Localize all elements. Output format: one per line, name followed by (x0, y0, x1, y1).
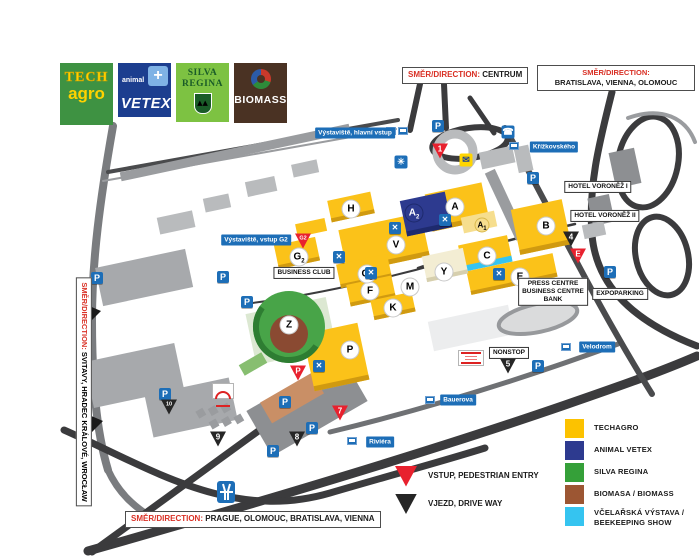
restaurant-icon: ✕ (333, 251, 345, 263)
poi-hotel-voronez-1: HOTEL VORONĚŽ I (564, 181, 631, 193)
legend-row: BIOMASA / BIOMASS (565, 485, 684, 504)
legend-label: SILVA REGINA (594, 463, 648, 477)
transit-stop-icon (561, 343, 571, 351)
restaurant-icon: ✕ (365, 267, 377, 279)
street-label: Riviéra (366, 436, 394, 447)
direction-prefix: SMĚR/DIRECTION: (540, 68, 692, 78)
parking-icon: P (279, 396, 291, 408)
poi-hotel-voronez-2: HOTEL VORONĚŽ II (570, 210, 639, 222)
transit-stop-icon (347, 437, 357, 445)
parking-icon: P (267, 445, 279, 457)
entry-marker-g2: G2 (295, 234, 311, 249)
hall-label-c: C (479, 248, 496, 265)
transit-stop-icon (398, 127, 408, 135)
hall-label-p: P (342, 342, 359, 359)
hall-label-g2: G2 (291, 249, 308, 266)
first-aid-icon: ✳ (395, 156, 408, 169)
legend-swatch (565, 441, 584, 460)
transit-stop-icon (425, 396, 435, 404)
silva-logo-line1: SILVA (176, 68, 229, 79)
entry-marker-7: 7 (332, 406, 348, 421)
hall-label-y: Y (436, 264, 453, 281)
restaurant-icon: ✕ (313, 360, 325, 372)
legend-row: ANIMAL VETEX (565, 441, 684, 460)
street-label: Výstaviště, vstup G2 (221, 234, 291, 245)
biomass-logo: BIOMASS (234, 63, 287, 123)
techagro-logo: TECH agro (60, 63, 113, 125)
legend-row: SILVA REGINA (565, 463, 684, 482)
legend-label: BIOMASA / BIOMASS (594, 485, 674, 499)
pedestrian-entry-label: VSTUP, PEDESTRIAN ENTRY (428, 472, 539, 480)
direction-prefix: SMĚR/DIRECTION: (131, 514, 203, 523)
animal-vetex-logo: + animal VETEX (118, 63, 171, 117)
motorway-icon (217, 481, 235, 503)
legend-label: VČELAŘSKÁ VÝSTAVA /BEEKEEPING SHOW (594, 507, 684, 528)
gate-marker-4: 4 (563, 232, 579, 247)
hall-label-a2: A2 (406, 205, 423, 222)
street-label: Výstaviště, hlavní vstup (315, 127, 395, 138)
vetex-logo-small-text: animal (122, 77, 144, 84)
direction-destinations: CENTRUM (482, 70, 522, 79)
hall-label-a: A (447, 199, 464, 216)
parking-icon: P (604, 266, 616, 278)
parking-icon: P (432, 120, 444, 132)
vetex-logo-big-text: VETEX (121, 97, 171, 112)
legend-swatch (565, 485, 584, 504)
direction-sign-prague: SMĚR/DIRECTION: PRAGUE, OLOMOUC, BRATISL… (125, 511, 381, 528)
fairground-map: AA1A2BCEFG1G2HKMVYZPPPPPPPPPPPP✕✕✕✕✕✕1G2… (0, 0, 699, 558)
entry-marker-1: 1 (432, 144, 448, 159)
legend-row: VČELAŘSKÁ VÝSTAVA /BEEKEEPING SHOW (565, 507, 684, 528)
poi-business-club: BUSINESS CLUB (273, 267, 334, 279)
drive-way-row: VJEZD, DRIVE WAY (395, 494, 539, 515)
gate-marker-5: 5 (500, 359, 516, 374)
drive-way-label: VJEZD, DRIVE WAY (428, 500, 502, 508)
vetex-cross-icon: + (148, 66, 168, 86)
direction-prefix: SMĚR/DIRECTION: (80, 282, 89, 350)
direction-prefix: SMĚR/DIRECTION: (408, 70, 480, 79)
street-label: Křížkovského (530, 141, 578, 152)
hall-label-a1: A1 (476, 219, 489, 232)
exhibition-logo-sign (212, 383, 234, 399)
direction-sign-centrum: SMĚR/DIRECTION: CENTRUM (402, 67, 528, 84)
gate-marker-9: 9 (210, 432, 226, 447)
silva-regina-logo: SILVA REGINA ▲▲ (176, 63, 229, 122)
red-stripes-sign (458, 350, 484, 366)
parking-icon: P (91, 272, 103, 284)
biomass-swirl-icon (251, 69, 271, 89)
techagro-logo-line1: TECH (60, 71, 113, 85)
hall-label-b: B (538, 218, 555, 235)
hall-label-h: H (343, 201, 360, 218)
drive-way-symbol (395, 494, 417, 515)
silva-logo-line2: REGINA (176, 79, 229, 90)
phone-icon: ☎ (502, 126, 515, 139)
restaurant-icon: ✕ (439, 214, 451, 226)
legend-swatch (565, 419, 584, 438)
parking-icon: P (306, 422, 318, 434)
pedestrian-entry-symbol (395, 466, 417, 487)
parking-icon: P (217, 271, 229, 283)
restaurant-icon: ✕ (389, 222, 401, 234)
silva-shield-trees-icon: ▲▲ (194, 93, 212, 114)
hall-color-legend: TECHAGROANIMAL VETEXSILVA REGINABIOMASA … (565, 419, 684, 531)
legend-label: ANIMAL VETEX (594, 441, 652, 455)
street-label: Velodrom (579, 341, 615, 352)
hall-label-m: M (402, 279, 419, 296)
gate-marker-8: 8 (289, 432, 305, 447)
legend-row: TECHAGRO (565, 419, 684, 438)
poi-expoparking: EXPOPARKING (592, 288, 648, 300)
pedestrian-entry-row: VSTUP, PEDESTRIAN ENTRY (395, 466, 539, 487)
post-office-icon: ✉ (460, 154, 473, 167)
legend-swatch (565, 507, 584, 526)
parking-icon: P (241, 296, 253, 308)
direction-sign-bratislava: SMĚR/DIRECTION: BRATISLAVA, VIENNA, OLOM… (537, 65, 695, 91)
parking-icon: P (532, 360, 544, 372)
entry-marker-p: P (290, 366, 306, 381)
entry-legend: VSTUP, PEDESTRIAN ENTRY VJEZD, DRIVE WAY (395, 466, 539, 521)
legend-swatch (565, 463, 584, 482)
hall-label-k: K (385, 300, 402, 317)
parking-icon: P (159, 388, 171, 400)
entry-marker-e: E (570, 249, 586, 264)
direction-sign-svitavy: SMĚR/DIRECTION: SVITAVY, HRADEC KRÁLOVÉ,… (76, 277, 92, 506)
street-label: Bauerova (440, 394, 476, 405)
direction-destinations: PRAGUE, OLOMOUC, BRATISLAVA, VIENNA (205, 514, 374, 523)
hall-label-f: F (362, 283, 379, 300)
parking-icon: P (527, 172, 539, 184)
hall-label-v: V (388, 237, 405, 254)
restaurant-icon: ✕ (493, 268, 505, 280)
poi-press-centre: PRESS CENTREBUSINESS CENTREBANK (518, 278, 588, 306)
direction-destinations: BRATISLAVA, VIENNA, OLOMOUC (540, 78, 692, 88)
gate-marker-10: 10 (161, 400, 177, 415)
techagro-logo-line2: agro (60, 85, 113, 104)
hall-label-z: Z (281, 317, 298, 334)
poi-nonstop: NONSTOP (489, 347, 529, 359)
direction-destinations: SVITAVY, HRADEC KRÁLOVÉ, WROCŁAW (80, 352, 89, 502)
legend-label: TECHAGRO (594, 419, 639, 433)
transit-stop-icon (509, 142, 519, 150)
biomass-logo-text: BIOMASS (234, 95, 287, 106)
